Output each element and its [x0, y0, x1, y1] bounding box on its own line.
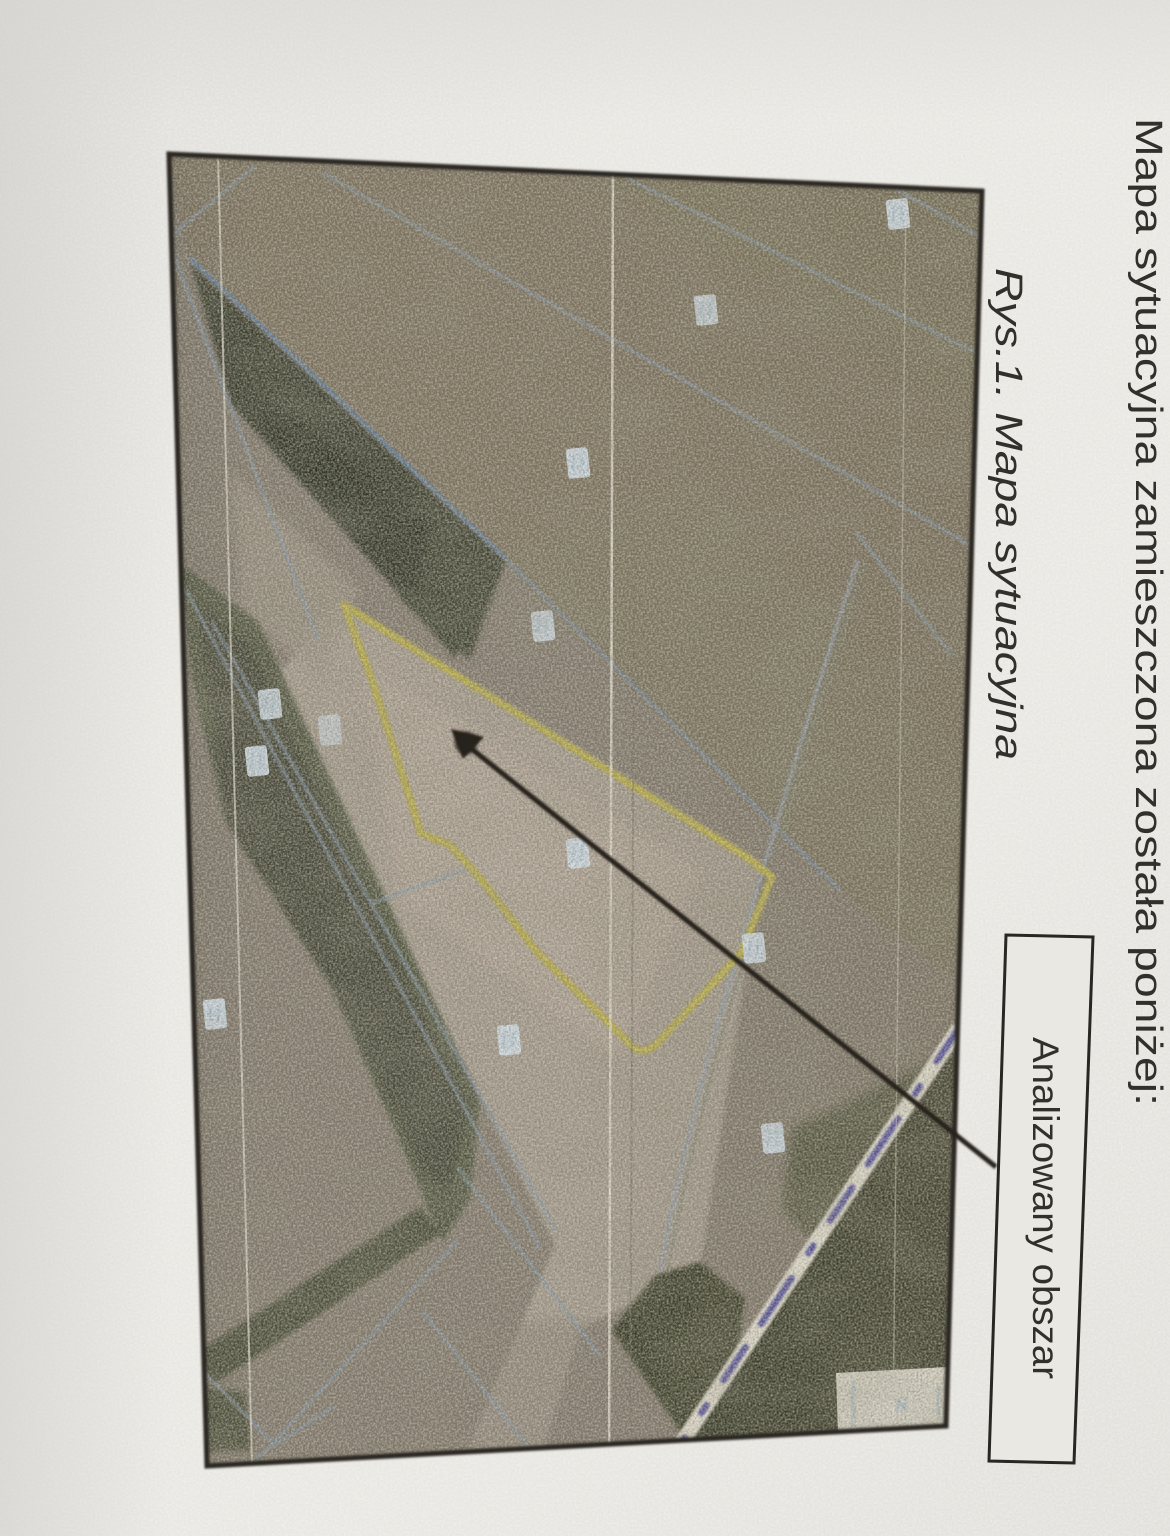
svg-text:Rys.1. Mapa sytuacyjna: Rys.1. Mapa sytuacyjna [987, 268, 1029, 760]
svg-text:Mapa sytuacyjna zamieszczona z: Mapa sytuacyjna zamieszczona została pon… [1127, 118, 1169, 1106]
svg-text:Analizowany obszar: Analizowany obszar [1025, 1037, 1066, 1379]
